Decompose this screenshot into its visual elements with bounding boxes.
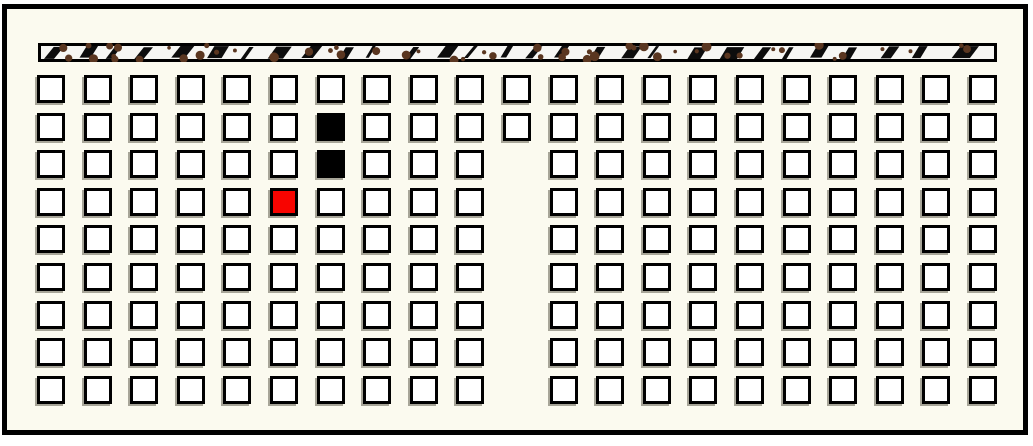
grid-cell[interactable] [876, 113, 904, 141]
grid-cell[interactable] [596, 263, 624, 291]
grid-cell[interactable] [969, 150, 997, 178]
grid-cell[interactable] [270, 113, 298, 141]
grid-cell[interactable] [317, 263, 345, 291]
grid-cell[interactable] [596, 75, 624, 103]
grid-cell[interactable] [456, 338, 484, 366]
grid-cell[interactable] [876, 150, 904, 178]
grid-cell[interactable] [596, 338, 624, 366]
grid-cell[interactable] [363, 301, 391, 329]
grid-cell[interactable] [783, 301, 811, 329]
grid-cell[interactable] [130, 75, 158, 103]
grid-cell[interactable] [550, 338, 578, 366]
grid-cell[interactable] [596, 150, 624, 178]
grid-cell[interactable] [223, 225, 251, 253]
grid-cell[interactable] [177, 188, 205, 216]
grid-cell[interactable] [317, 75, 345, 103]
grid-cell[interactable] [410, 150, 438, 178]
grid-cell[interactable] [829, 150, 857, 178]
grid-cell[interactable] [223, 301, 251, 329]
grid-cell[interactable] [270, 225, 298, 253]
grid-cell[interactable] [643, 75, 671, 103]
grid-cell[interactable] [456, 75, 484, 103]
grid-cell[interactable] [783, 338, 811, 366]
grid-cell[interactable] [456, 188, 484, 216]
grid-cell[interactable] [550, 188, 578, 216]
grid-cell[interactable] [922, 150, 950, 178]
grid-cell[interactable] [922, 301, 950, 329]
grid-cell[interactable] [223, 150, 251, 178]
grid-cell[interactable] [643, 376, 671, 404]
grid-cell[interactable] [37, 75, 65, 103]
grid-cell[interactable] [130, 113, 158, 141]
grid-cell[interactable] [876, 225, 904, 253]
grid-cell[interactable] [37, 338, 65, 366]
grid-cell[interactable] [643, 301, 671, 329]
grid-cell[interactable] [177, 301, 205, 329]
grid-cell[interactable] [363, 150, 391, 178]
grid-cell[interactable] [736, 113, 764, 141]
grid-cell[interactable] [130, 263, 158, 291]
grid-cell[interactable] [456, 225, 484, 253]
grid-cell[interactable] [829, 263, 857, 291]
grid-cell[interactable] [456, 150, 484, 178]
grid-cell[interactable] [410, 376, 438, 404]
grid-cell[interactable] [317, 376, 345, 404]
grid-cell[interactable] [876, 188, 904, 216]
grid-cell[interactable] [317, 188, 345, 216]
grid-cell[interactable] [969, 188, 997, 216]
grid-cell[interactable] [783, 188, 811, 216]
grid-cell[interactable] [829, 338, 857, 366]
grid-cell[interactable] [410, 113, 438, 141]
grid-cell[interactable] [37, 188, 65, 216]
grid-cell[interactable] [270, 301, 298, 329]
grid-cell[interactable] [456, 263, 484, 291]
grid-cell[interactable] [456, 113, 484, 141]
grid-cell[interactable] [922, 188, 950, 216]
grid-cell[interactable] [643, 263, 671, 291]
grid-cell[interactable] [689, 225, 717, 253]
grid-cell[interactable] [736, 225, 764, 253]
grid-cell[interactable] [130, 338, 158, 366]
grid-cell[interactable] [177, 225, 205, 253]
grid-cell[interactable] [643, 225, 671, 253]
grid-cell[interactable] [130, 225, 158, 253]
grid-cell[interactable] [736, 188, 764, 216]
grid-cell[interactable] [270, 75, 298, 103]
grid-cell[interactable] [783, 225, 811, 253]
grid-cell[interactable] [550, 376, 578, 404]
board-canvas [0, 0, 1033, 446]
grid-cell[interactable] [550, 263, 578, 291]
grid-cell[interactable] [643, 113, 671, 141]
grid-cell[interactable] [317, 301, 345, 329]
grid-cell[interactable] [223, 113, 251, 141]
grid-cell[interactable] [363, 338, 391, 366]
grid-cell[interactable] [596, 376, 624, 404]
grid-cell[interactable] [596, 301, 624, 329]
grid-cell[interactable] [503, 113, 531, 141]
grid-cell[interactable] [456, 301, 484, 329]
grid-cell[interactable] [37, 150, 65, 178]
grid-cell[interactable] [736, 75, 764, 103]
grid-cell[interactable] [689, 150, 717, 178]
grid-cell[interactable] [270, 150, 298, 178]
grid-cell[interactable] [829, 376, 857, 404]
grid-cell[interactable] [363, 225, 391, 253]
grid-cell[interactable] [363, 376, 391, 404]
grid-cell[interactable] [503, 75, 531, 103]
grid-cell[interactable] [689, 263, 717, 291]
seat-grid [0, 0, 1033, 446]
grid-cell[interactable] [37, 301, 65, 329]
grid-cell[interactable] [456, 376, 484, 404]
grid-cell[interactable] [410, 225, 438, 253]
grid-cell[interactable] [783, 75, 811, 103]
grid-cell[interactable] [317, 338, 345, 366]
grid-cell[interactable] [363, 263, 391, 291]
grid-cell[interactable] [84, 150, 112, 178]
grid-cell[interactable] [969, 301, 997, 329]
grid-cell[interactable] [37, 263, 65, 291]
grid-cell[interactable] [736, 301, 764, 329]
grid-cell[interactable] [550, 113, 578, 141]
grid-cell[interactable] [596, 188, 624, 216]
grid-cell[interactable] [223, 376, 251, 404]
grid-cell[interactable] [643, 338, 671, 366]
grid-cell[interactable] [177, 376, 205, 404]
grid-cell[interactable] [410, 301, 438, 329]
grid-cell[interactable] [177, 113, 205, 141]
grid-cell[interactable] [922, 338, 950, 366]
grid-cell[interactable] [689, 188, 717, 216]
grid-cell[interactable] [363, 188, 391, 216]
grid-cell[interactable] [969, 225, 997, 253]
grid-cell[interactable] [550, 301, 578, 329]
grid-cell[interactable] [130, 301, 158, 329]
grid-cell[interactable] [922, 75, 950, 103]
grid-cell[interactable] [969, 263, 997, 291]
grid-cell[interactable] [550, 75, 578, 103]
grid-cell[interactable] [876, 338, 904, 366]
grid-cell[interactable] [223, 263, 251, 291]
grid-cell[interactable] [177, 338, 205, 366]
grid-cell[interactable] [876, 75, 904, 103]
grid-cell[interactable] [922, 263, 950, 291]
grid-cell[interactable] [829, 188, 857, 216]
grid-cell[interactable] [410, 338, 438, 366]
grid-cell[interactable] [829, 301, 857, 329]
grid-cell[interactable] [223, 75, 251, 103]
grid-cell[interactable] [410, 75, 438, 103]
grid-cell[interactable] [689, 301, 717, 329]
grid-cell[interactable] [130, 150, 158, 178]
grid-cell[interactable] [689, 75, 717, 103]
grid-cell[interactable] [37, 225, 65, 253]
grid-cell[interactable] [84, 263, 112, 291]
grid-cell[interactable] [84, 188, 112, 216]
grid-cell[interactable] [922, 113, 950, 141]
grid-cell[interactable] [829, 225, 857, 253]
grid-cell[interactable] [596, 113, 624, 141]
grid-cell[interactable] [689, 338, 717, 366]
grid-cell[interactable] [130, 188, 158, 216]
grid-cell[interactable] [270, 263, 298, 291]
grid-cell[interactable] [829, 75, 857, 103]
grid-cell[interactable] [969, 113, 997, 141]
grid-cell[interactable] [84, 113, 112, 141]
grid-cell[interactable] [969, 75, 997, 103]
grid-cell[interactable] [84, 225, 112, 253]
selected-cell[interactable] [270, 188, 298, 216]
grid-cell[interactable] [270, 338, 298, 366]
grid-cell[interactable] [84, 75, 112, 103]
grid-cell[interactable] [177, 150, 205, 178]
grid-cell[interactable] [177, 263, 205, 291]
filled-cell[interactable] [317, 150, 345, 178]
grid-cell[interactable] [223, 338, 251, 366]
grid-cell[interactable] [689, 376, 717, 404]
grid-cell[interactable] [922, 225, 950, 253]
grid-cell[interactable] [689, 113, 717, 141]
grid-cell[interactable] [37, 376, 65, 404]
grid-cell[interactable] [969, 338, 997, 366]
grid-cell[interactable] [223, 188, 251, 216]
grid-cell[interactable] [876, 376, 904, 404]
grid-cell[interactable] [37, 113, 65, 141]
grid-cell[interactable] [736, 376, 764, 404]
grid-cell[interactable] [317, 225, 345, 253]
grid-cell[interactable] [84, 338, 112, 366]
grid-cell[interactable] [783, 150, 811, 178]
grid-cell[interactable] [876, 301, 904, 329]
grid-cell[interactable] [410, 188, 438, 216]
grid-cell[interactable] [736, 150, 764, 178]
grid-cell[interactable] [177, 75, 205, 103]
grid-cell[interactable] [596, 225, 624, 253]
filled-cell[interactable] [317, 113, 345, 141]
grid-cell[interactable] [829, 113, 857, 141]
grid-cell[interactable] [84, 376, 112, 404]
grid-cell[interactable] [270, 376, 298, 404]
grid-cell[interactable] [736, 338, 764, 366]
grid-cell[interactable] [410, 263, 438, 291]
grid-cell[interactable] [783, 263, 811, 291]
grid-cell[interactable] [643, 188, 671, 216]
grid-cell[interactable] [922, 376, 950, 404]
grid-cell[interactable] [550, 225, 578, 253]
grid-cell[interactable] [550, 150, 578, 178]
grid-cell[interactable] [969, 376, 997, 404]
grid-cell[interactable] [363, 113, 391, 141]
grid-cell[interactable] [876, 263, 904, 291]
grid-cell[interactable] [783, 376, 811, 404]
grid-cell[interactable] [736, 263, 764, 291]
grid-cell[interactable] [363, 75, 391, 103]
grid-cell[interactable] [130, 376, 158, 404]
grid-cell[interactable] [643, 150, 671, 178]
grid-cell[interactable] [84, 301, 112, 329]
grid-cell[interactable] [783, 113, 811, 141]
